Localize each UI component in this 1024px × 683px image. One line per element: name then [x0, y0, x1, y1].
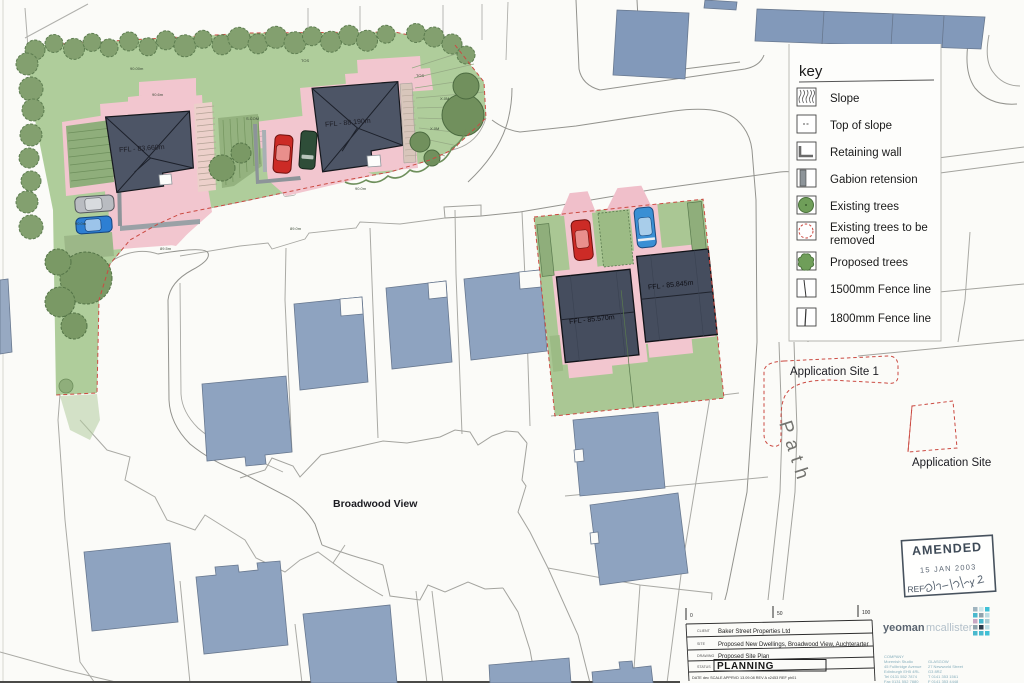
svg-text:S.COM: S.COM — [246, 116, 259, 121]
svg-text:0: 0 — [690, 613, 693, 619]
svg-text:Application Site 1: Application Site 1 — [790, 366, 879, 378]
svg-text:X.0M: X.0M — [440, 96, 449, 101]
svg-text:Baker Street Properties Ltd: Baker Street Properties Ltd — [718, 629, 790, 635]
svg-text:Gabion retension: Gabion retension — [830, 174, 918, 186]
svg-text:Existing trees: Existing trees — [830, 201, 899, 213]
svg-text:1500mm Fence line: 1500mm Fence line — [830, 284, 931, 296]
svg-text:Proposed trees: Proposed trees — [830, 257, 908, 269]
svg-text:F 0141 353 4448: F 0141 353 4448 — [928, 679, 959, 683]
svg-text:TOS: TOS — [416, 73, 424, 78]
svg-text:Top of slope: Top of slope — [830, 120, 892, 132]
svg-text:90.0m: 90.0m — [355, 186, 367, 191]
svg-text:X.0M: X.0M — [430, 126, 439, 131]
svg-text:90.0m: 90.0m — [75, 221, 87, 226]
svg-text:TOS: TOS — [301, 58, 309, 63]
svg-text:CLIENT: CLIENT — [697, 629, 711, 633]
svg-text:90.6m: 90.6m — [152, 92, 164, 97]
svg-text:Proposed New Dwellings, Broadw: Proposed New Dwellings, Broadwood View, … — [718, 642, 869, 648]
svg-text:89.5m: 89.5m — [160, 246, 172, 251]
svg-text:90.00m: 90.00m — [130, 66, 144, 71]
svg-text:100: 100 — [862, 610, 871, 616]
svg-text:DRAWING: DRAWING — [697, 654, 714, 658]
svg-text:Fax 0131 552 7880: Fax 0131 552 7880 — [884, 679, 919, 683]
svg-text:Existing trees to be: Existing trees to be — [830, 222, 928, 234]
svg-text:key: key — [799, 63, 823, 80]
svg-text:yeoman: yeoman — [883, 622, 925, 634]
svg-text:mcallister: mcallister — [926, 622, 973, 634]
svg-text:DATE dec SCALE APPRVD: DATE dec SCALE APPRVD 13.09.08 REV A x24… — [692, 676, 796, 680]
svg-text:89.0m: 89.0m — [290, 226, 302, 231]
svg-text:Broadwood View: Broadwood View — [333, 498, 418, 510]
svg-text:Retaining wall: Retaining wall — [830, 147, 902, 159]
svg-text:PLANNING: PLANNING — [717, 661, 774, 672]
svg-text:removed: removed — [830, 235, 875, 247]
svg-text:Application Site: Application Site — [912, 457, 991, 469]
svg-text:STATUS: STATUS — [697, 665, 711, 669]
svg-text:50: 50 — [777, 611, 783, 617]
svg-text:1800mm Fence line: 1800mm Fence line — [830, 313, 931, 325]
svg-text:SITE: SITE — [697, 642, 706, 646]
svg-text:Slope: Slope — [830, 93, 859, 105]
svg-text:REF: REF — [907, 583, 925, 594]
